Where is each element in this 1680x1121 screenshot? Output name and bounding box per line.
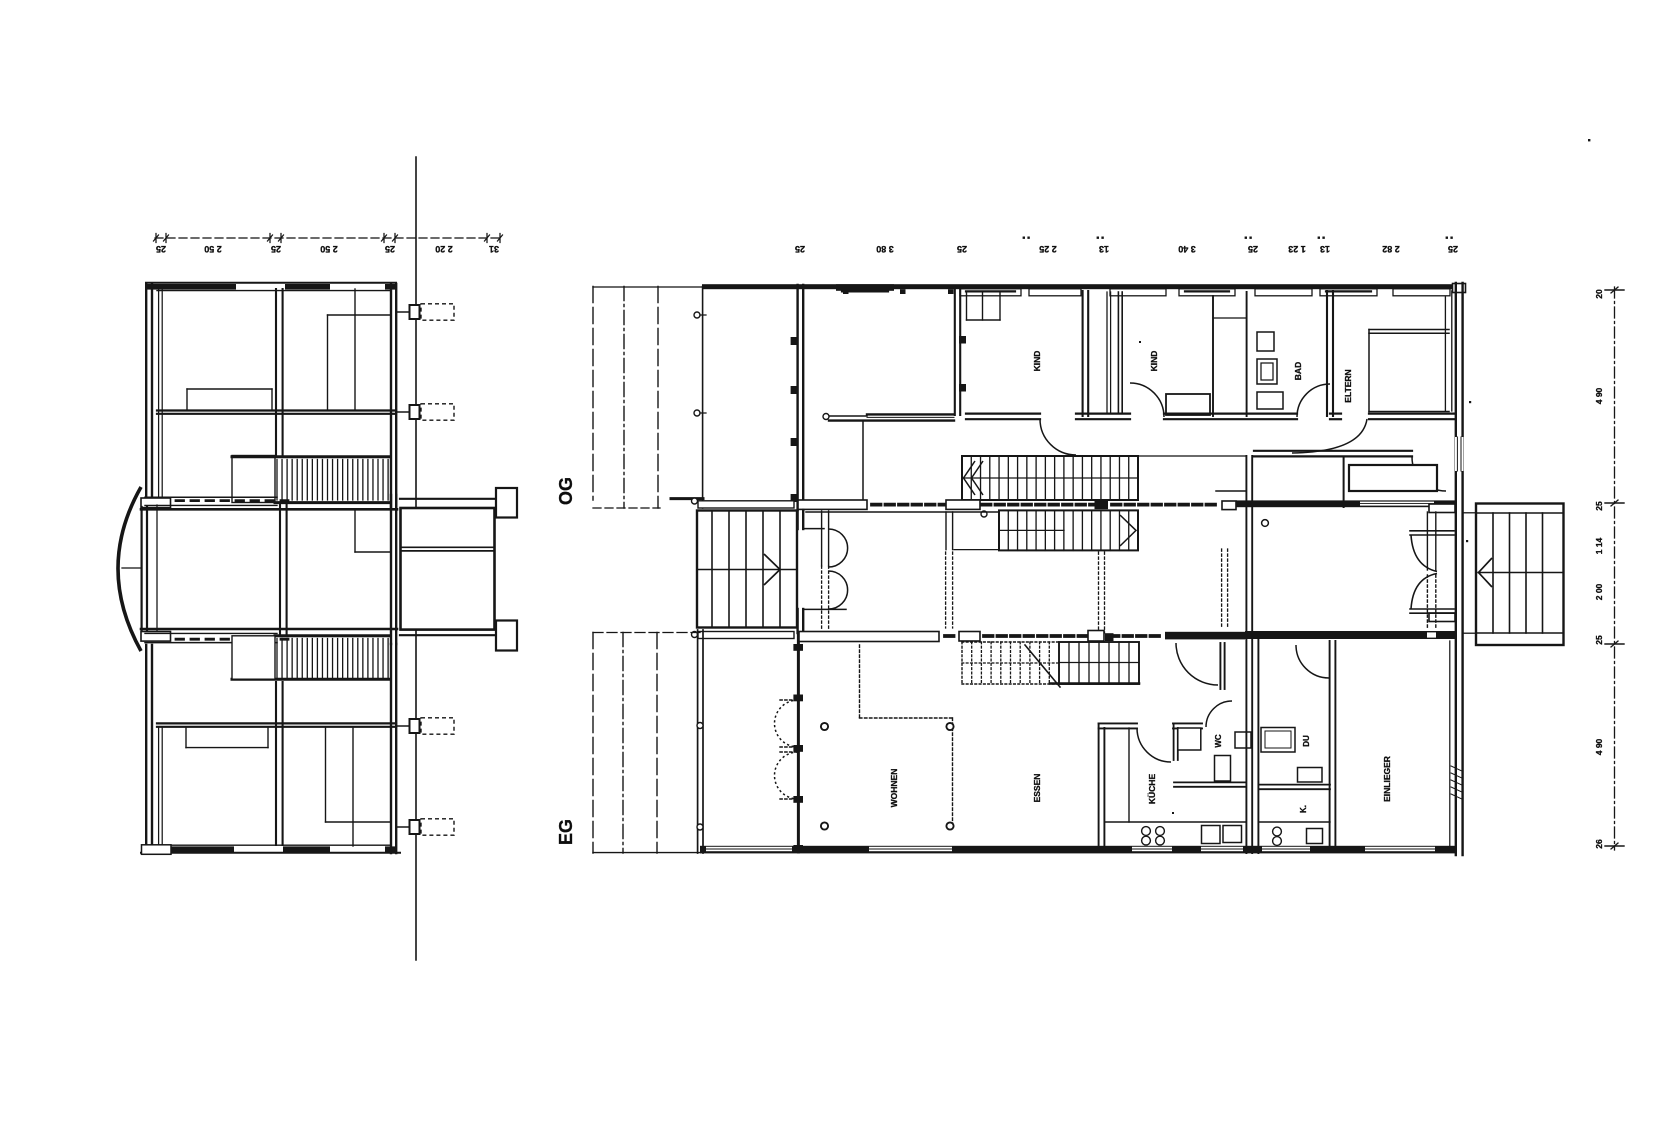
svg-text:K.: K. (1299, 805, 1308, 813)
svg-text:31: 31 (489, 244, 499, 254)
svg-text:2 82: 2 82 (1382, 244, 1400, 254)
svg-text:25: 25 (1594, 501, 1604, 511)
svg-text:2 00: 2 00 (1594, 583, 1604, 600)
svg-text:2 25: 2 25 (1039, 244, 1057, 254)
svg-text:2 50: 2 50 (204, 244, 222, 254)
svg-text:2 50: 2 50 (320, 244, 338, 254)
svg-text:4 90: 4 90 (1594, 387, 1604, 404)
svg-text:WOHNEN: WOHNEN (889, 769, 899, 808)
svg-text:13: 13 (1099, 244, 1109, 254)
svg-text:25: 25 (271, 244, 281, 254)
svg-text:3 80: 3 80 (876, 244, 894, 254)
svg-text:25: 25 (156, 244, 166, 254)
svg-text:OG: OG (556, 477, 576, 505)
svg-text:KÜCHE: KÜCHE (1147, 774, 1157, 805)
svg-text:BAD: BAD (1293, 362, 1303, 380)
svg-text:4 90: 4 90 (1594, 738, 1604, 755)
svg-text:1 14: 1 14 (1594, 537, 1604, 554)
svg-text:26: 26 (1594, 839, 1604, 849)
svg-text:WC: WC (1214, 734, 1223, 748)
svg-text:25: 25 (385, 244, 395, 254)
svg-text:25: 25 (1594, 635, 1604, 645)
svg-text:20: 20 (1594, 289, 1604, 299)
svg-text:2 20: 2 20 (435, 244, 453, 254)
svg-text:ESSEN: ESSEN (1032, 774, 1042, 803)
svg-text:DU: DU (1302, 735, 1311, 747)
svg-text:1 23: 1 23 (1288, 244, 1306, 254)
svg-text:KIND: KIND (1032, 351, 1042, 372)
svg-text:25: 25 (795, 244, 805, 254)
svg-text:KIND: KIND (1149, 351, 1159, 372)
svg-text:25: 25 (957, 244, 967, 254)
svg-text:EG: EG (556, 819, 576, 845)
svg-text:ELTERN: ELTERN (1343, 369, 1353, 402)
svg-text:13: 13 (1320, 244, 1330, 254)
svg-text:25: 25 (1248, 244, 1258, 254)
svg-text:3 40: 3 40 (1178, 244, 1196, 254)
svg-text:EINLIEGER: EINLIEGER (1382, 756, 1392, 802)
svg-text:25: 25 (1448, 244, 1458, 254)
